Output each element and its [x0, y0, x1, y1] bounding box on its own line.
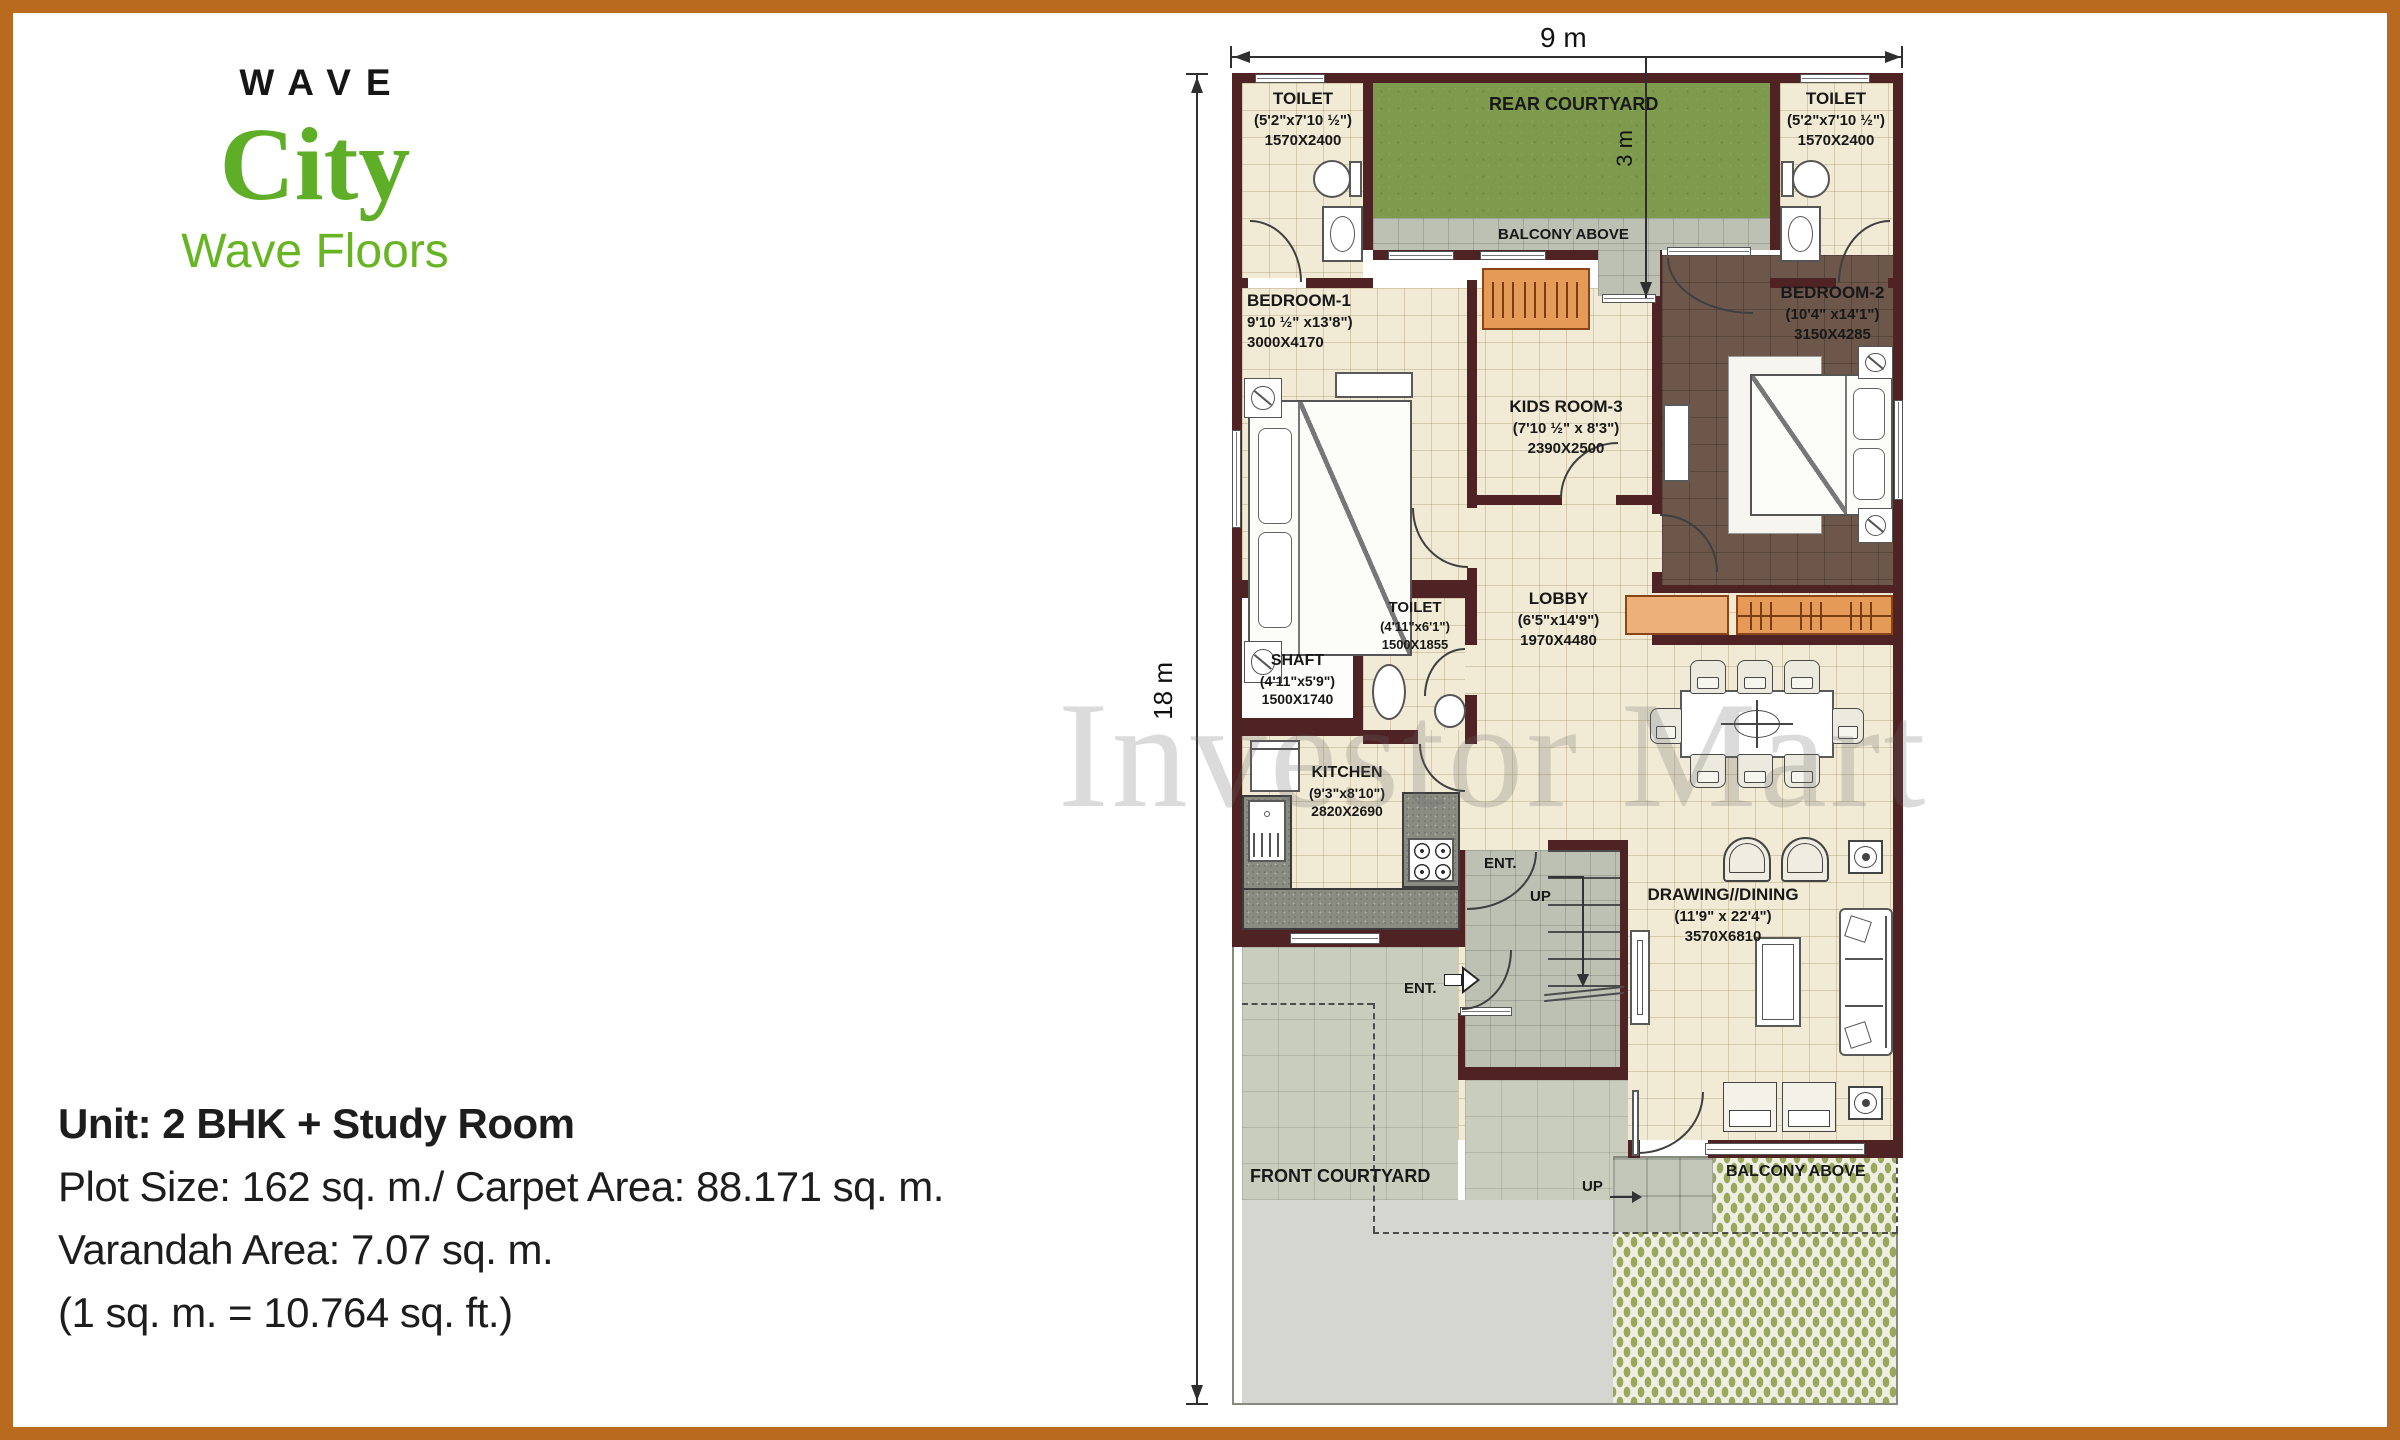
wall	[1467, 495, 1562, 505]
coffee-table-inner	[1762, 944, 1794, 1020]
watermark: Investor Mart	[1058, 668, 1929, 842]
label-rear-courtyard: REAR COURTYARD	[1489, 94, 1658, 115]
wall	[1458, 1067, 1628, 1080]
wall	[1306, 278, 1373, 288]
entrance-arrow-shaft	[1444, 974, 1462, 986]
window-sill	[1255, 74, 1325, 83]
plot-edge-right	[1896, 1232, 1898, 1405]
stair-arrow-lead	[1548, 876, 1584, 878]
unit-details: Unit: 2 BHK + Study Room Plot Size: 162 …	[58, 1092, 944, 1344]
floor-plan-sheet: { "brand": {"wave": "WAVE", "city": "Cit…	[0, 0, 2400, 1440]
wall	[1363, 73, 1373, 250]
hanger-marks	[1556, 282, 1580, 318]
dim-line-width	[1232, 56, 1903, 58]
dim-tick	[1186, 1403, 1208, 1405]
up-plot-arrow-line	[1610, 1196, 1632, 1198]
stair-arrow-head	[1577, 974, 1589, 987]
label-ent-lobby: ENT.	[1484, 855, 1517, 872]
storage-panel-inner	[1637, 940, 1643, 1015]
brand-logo: WAVE City Wave Floors	[125, 62, 505, 279]
setback-dash-v	[1373, 1003, 1375, 1232]
ceiling-fan-icon	[1858, 508, 1893, 543]
dresser-bedroom-2	[1663, 404, 1690, 482]
setback-dash-h	[1242, 1003, 1373, 1005]
up-plot-arrow-head	[1632, 1191, 1642, 1203]
dim-label-width: 9 m	[1540, 22, 1587, 54]
bed-pillow	[1853, 448, 1885, 500]
hanger-marks	[1750, 602, 1780, 630]
dim-tick	[1901, 46, 1903, 68]
hanger-marks	[1850, 602, 1880, 630]
window-sill	[1705, 1143, 1865, 1155]
door-arc-balcony	[1638, 1092, 1704, 1154]
bed-fold-line	[1752, 376, 1847, 514]
window-sill	[1290, 933, 1380, 944]
label-balcony-above-top: BALCONY ABOVE	[1498, 226, 1629, 243]
unit-type: Unit: 2 BHK + Study Room	[58, 1092, 944, 1155]
label-toilet-top-left: TOILET (5'2"x7'10 ½") 1570X2400	[1244, 88, 1362, 151]
bed-pillow	[1853, 388, 1885, 440]
window-sill	[1232, 430, 1241, 528]
armchair-arch	[1723, 837, 1771, 882]
armchair-square	[1723, 1082, 1777, 1132]
bed-bedroom-2	[1750, 374, 1893, 516]
wall	[1616, 495, 1652, 505]
ceiling-fan-icon	[1858, 346, 1893, 379]
balcony-dash-v	[1896, 1158, 1898, 1232]
stair-arrow-line	[1582, 876, 1584, 976]
wall	[1232, 278, 1248, 288]
dim-arrow-right	[1885, 51, 1901, 63]
brand-wave: WAVE	[125, 62, 505, 104]
sofa-seat-line	[1845, 1005, 1883, 1007]
label-balcony-above-bottom: BALCONY ABOVE	[1726, 1163, 1866, 1181]
bed-pillow	[1258, 428, 1292, 524]
dim-label-courtyard: 3 m	[1612, 130, 1638, 167]
wall	[1652, 635, 1903, 645]
washbasin	[1322, 206, 1363, 262]
floor-plot-steps	[1613, 1158, 1713, 1232]
kitchen-counter-bottom	[1242, 888, 1460, 930]
label-ent-main: ENT.	[1404, 980, 1437, 997]
plot-edge-bottom	[1232, 1403, 1898, 1405]
wall	[1620, 840, 1628, 1080]
wall	[1652, 585, 1903, 593]
label-drawing-dining: DRAWING//DINING (11'9" x 22'4") 3570X681…	[1628, 884, 1818, 947]
window-sill	[1667, 247, 1751, 256]
window-sill	[1894, 400, 1903, 500]
dim-arrow-left	[1234, 51, 1250, 63]
wall	[1652, 572, 1662, 585]
armchair-square	[1782, 1082, 1836, 1132]
label-up-stairs: UP	[1530, 888, 1551, 905]
stove-burners	[1408, 838, 1454, 882]
floor-front-courtyard-tiles-2	[1465, 1080, 1628, 1200]
window-sill	[1480, 251, 1546, 260]
sofa-back	[1885, 916, 1887, 1048]
dim-arrow-courtyard	[1640, 282, 1652, 297]
dim-line-courtyard	[1645, 58, 1647, 298]
hanger-marks	[1524, 282, 1548, 318]
bedside-dresser	[1335, 372, 1413, 398]
brand-tagline: Wave Floors	[125, 224, 505, 279]
sofa-cushion	[1844, 1021, 1872, 1049]
wall	[1893, 73, 1903, 1158]
washbasin	[1780, 206, 1821, 262]
dim-arrow-up	[1191, 77, 1203, 93]
sofa	[1839, 908, 1893, 1056]
brand-city: City	[125, 112, 505, 218]
wardrobe-bedroom-2	[1736, 595, 1893, 635]
window-sill	[1388, 251, 1454, 260]
wardrobe-dresser-peach	[1625, 595, 1729, 635]
label-lobby: LOBBY (6'5"x14'9") 1970X4480	[1496, 588, 1621, 651]
hanger-marks	[1492, 282, 1516, 318]
dim-arrow-down	[1191, 1385, 1203, 1401]
wardrobe-kids	[1482, 268, 1590, 330]
label-bedroom-1: BEDROOM-1 9'10 ½" x13'8") 3000X4170	[1247, 290, 1353, 353]
wc-bowl	[1313, 160, 1351, 198]
floor-front-courtyard-plain	[1242, 1200, 1613, 1404]
ceiling-fan-icon	[1244, 378, 1282, 418]
balcony-dash-h	[1373, 1232, 1898, 1234]
wc-bowl	[1792, 160, 1830, 198]
wall	[1458, 1013, 1465, 1067]
side-table-lamp	[1848, 840, 1883, 874]
label-bedroom-2: BEDROOM-2 (10'4" x14'1") 3150X4285	[1745, 282, 1920, 345]
bed-pillow	[1258, 532, 1292, 628]
dim-tick	[1186, 73, 1208, 75]
plot-edge-left	[1232, 947, 1234, 1405]
plot-size: Plot Size: 162 sq. m./ Carpet Area: 88.1…	[58, 1155, 944, 1218]
label-front-courtyard: FRONT COURTYARD	[1250, 1166, 1430, 1187]
label-up-plot: UP	[1582, 1178, 1603, 1195]
armchair-arch	[1781, 837, 1829, 882]
entrance-arrow-fill	[1464, 970, 1477, 990]
dim-tick	[1230, 46, 1232, 68]
wall	[1467, 280, 1477, 508]
side-table-lamp	[1848, 1086, 1883, 1120]
window-sill	[1800, 74, 1870, 83]
sofa-seat-line	[1845, 958, 1883, 960]
coffee-table	[1755, 937, 1801, 1027]
varandah-area: Varandah Area: 7.07 sq. m.	[58, 1218, 944, 1281]
label-kids-room: KIDS ROOM-3 (7'10 ½" x 8'3") 2390X2500	[1480, 396, 1652, 459]
sofa-cushion	[1844, 915, 1872, 943]
label-toilet-top-right: TOILET (5'2"x7'10 ½") 1570X2400	[1778, 88, 1894, 151]
door-leaf-balcony	[1632, 1090, 1639, 1156]
label-toilet-mid: TOILET (4'11"x6'1") 1500X1855	[1363, 598, 1467, 653]
floor-balcony-lattice-bottom	[1613, 1232, 1896, 1403]
hanger-marks	[1800, 602, 1830, 630]
conversion-note: (1 sq. m. = 10.764 sq. ft.)	[58, 1281, 944, 1344]
